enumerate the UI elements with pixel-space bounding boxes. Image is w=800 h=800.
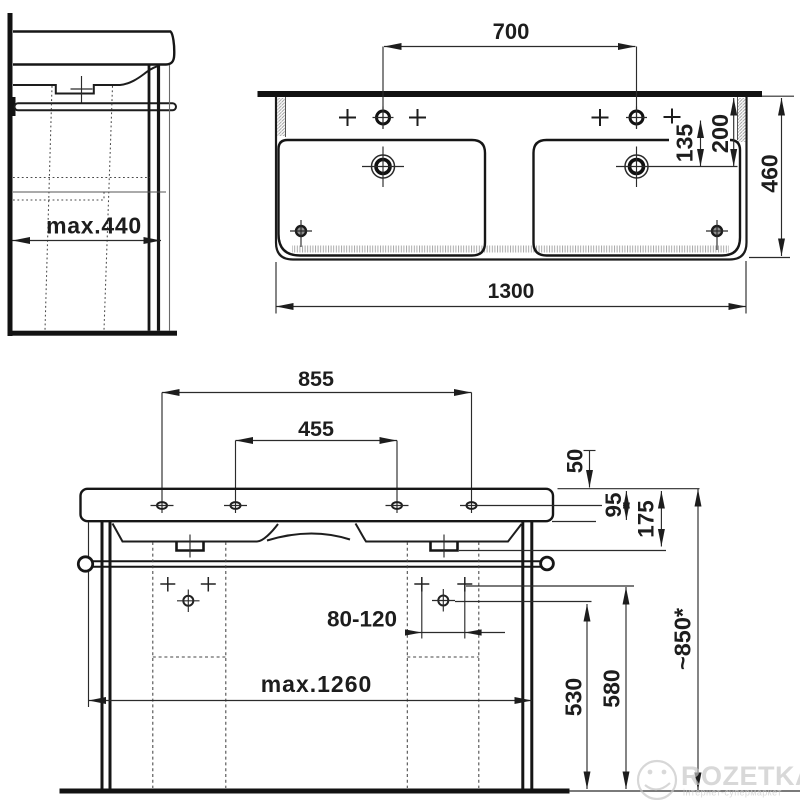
svg-text:580: 580 — [599, 669, 625, 707]
svg-text:50: 50 — [563, 449, 588, 473]
svg-text:200: 200 — [707, 114, 733, 153]
svg-text:135: 135 — [672, 124, 698, 163]
svg-text:max.440: max.440 — [46, 213, 142, 239]
svg-text:max.1260: max.1260 — [261, 671, 373, 697]
svg-text:інтернет-супермаркет: інтернет-супермаркет — [683, 788, 782, 798]
svg-text:455: 455 — [298, 417, 334, 441]
svg-text:1300: 1300 — [488, 280, 535, 303]
svg-text:95: 95 — [601, 492, 626, 517]
svg-text:175: 175 — [634, 500, 659, 538]
svg-text:530: 530 — [560, 678, 586, 716]
svg-text:80-120: 80-120 — [327, 607, 397, 632]
svg-text:ROZETKA: ROZETKA — [681, 761, 800, 791]
svg-text:460: 460 — [757, 154, 783, 192]
svg-text:855: 855 — [298, 367, 334, 391]
svg-text:~850*: ~850* — [670, 607, 696, 670]
svg-text:700: 700 — [493, 19, 530, 44]
